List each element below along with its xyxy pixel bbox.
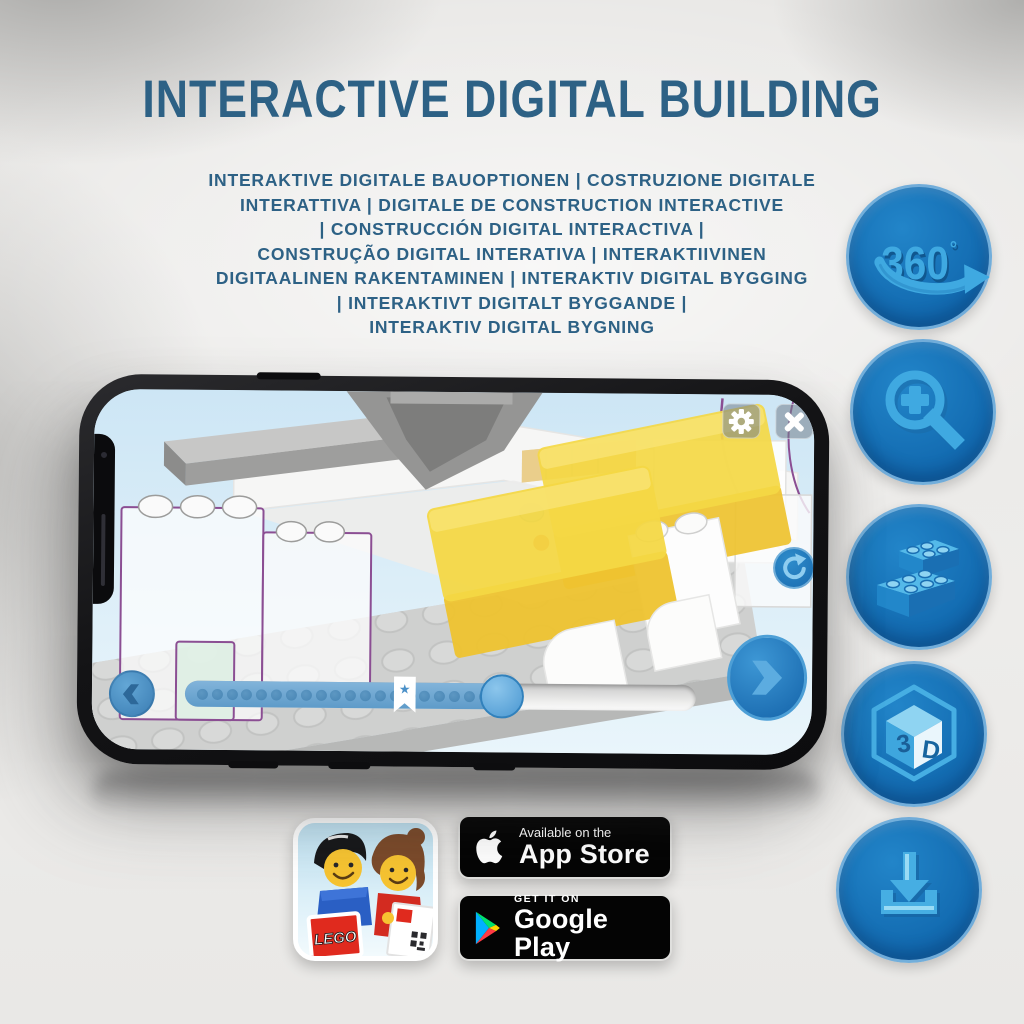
progress-dot — [449, 690, 460, 701]
play-triangle-icon — [472, 909, 503, 947]
feature-bricks-badge — [846, 504, 992, 650]
progress-dot — [241, 689, 252, 700]
360-degrees-icon: 360° — [881, 229, 957, 286]
progress-fill — [185, 681, 502, 710]
progress-dot — [345, 690, 356, 701]
chevron-right-icon — [749, 658, 785, 698]
progress-dot — [271, 689, 282, 700]
back-step-button[interactable] — [109, 670, 155, 717]
progress-dot — [212, 688, 223, 699]
feature-3d-badge: 3 D — [841, 661, 987, 807]
progress-dot — [197, 688, 208, 699]
cube-letter-d: D — [920, 735, 942, 765]
progress-dot — [330, 689, 341, 700]
progress-track[interactable]: ★ — [185, 681, 696, 711]
progress-dot — [256, 689, 267, 700]
page-title: INTERACTIVE DIGITAL BUILDING — [0, 72, 1024, 126]
apple-logo-icon — [472, 825, 508, 869]
camera-dot — [101, 452, 107, 458]
phone-volume-button — [257, 372, 321, 380]
subtitle-line: INTERAKTIV DIGITAL BYGNING — [0, 315, 1024, 340]
lego-bricks-icon — [865, 525, 973, 629]
page-background: INTERACTIVE DIGITAL BUILDING INTERAKTIVE… — [0, 0, 1024, 1024]
phone-mockup: ★ — [76, 374, 829, 771]
close-icon — [781, 408, 807, 434]
download-icon — [859, 840, 959, 940]
next-step-button[interactable] — [727, 634, 808, 721]
progress-dot — [301, 689, 312, 700]
progress-dot — [227, 689, 238, 700]
speaker-slit — [101, 514, 106, 586]
phone-side-button — [473, 763, 515, 770]
progress-dot — [434, 690, 445, 701]
rotate-arrow-icon — [777, 551, 811, 585]
app-store-label: App Store — [519, 840, 650, 868]
3d-cube-icon: 3 D — [861, 681, 967, 787]
google-play-badge[interactable]: GET IT ON Google Play — [458, 894, 672, 961]
google-play-label: Google Play — [514, 905, 658, 962]
phone-notch — [93, 434, 115, 604]
chevron-left-icon — [122, 682, 142, 706]
phone-side-button — [228, 761, 278, 768]
progress-dot — [464, 691, 475, 702]
app-screen: ★ — [91, 389, 814, 755]
lego-minifigures-art: LEGO — [298, 823, 433, 956]
lego-app-icon: LEGO — [293, 818, 438, 961]
swoosh-arrow-icon — [874, 256, 995, 304]
app-store-badge[interactable]: Available on the App Store — [458, 815, 672, 879]
subtitle-line: INTERAKTIVE DIGITALE BAUOPTIONEN | COSTR… — [0, 168, 1024, 193]
progress-dot — [419, 690, 430, 701]
progress-knob[interactable] — [480, 674, 524, 718]
app-store-tagline: Available on the — [519, 826, 650, 840]
rotate-model-button[interactable] — [773, 547, 815, 589]
magnifier-plus-icon — [871, 360, 975, 464]
progress-dot — [360, 690, 371, 701]
gear-icon — [726, 407, 756, 435]
progress-dot — [375, 690, 386, 701]
close-button[interactable] — [775, 404, 813, 439]
feature-zoom-badge — [850, 339, 996, 485]
phone-reflection — [92, 772, 820, 814]
progress-dot — [286, 689, 297, 700]
feature-360-badge: 360° — [846, 184, 992, 330]
phone-side-button — [328, 762, 370, 769]
settings-button[interactable] — [722, 403, 760, 438]
progress-dot — [316, 689, 327, 700]
feature-download-badge — [836, 817, 982, 963]
